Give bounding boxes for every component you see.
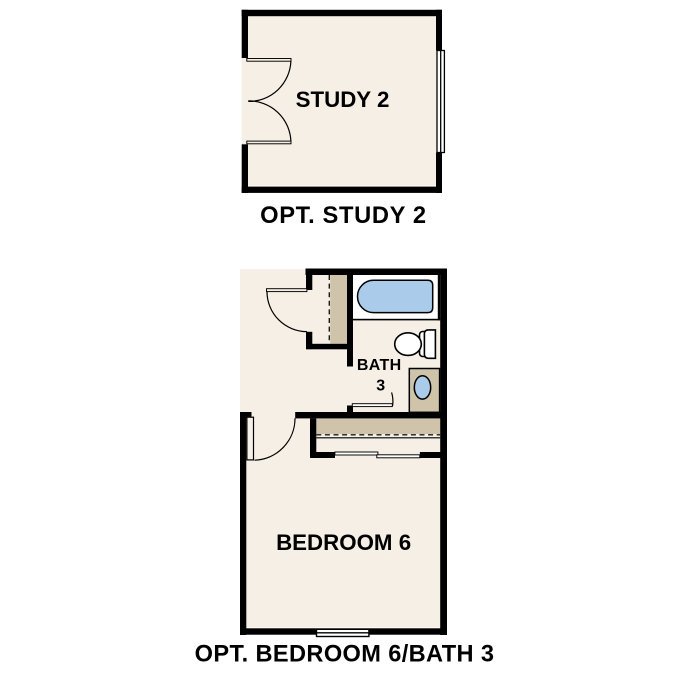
- svg-text:OPT. STUDY 2: OPT. STUDY 2: [260, 203, 427, 229]
- svg-text:STUDY 2: STUDY 2: [296, 87, 390, 112]
- svg-text:OPT. BEDROOM 6/BATH 3: OPT. BEDROOM 6/BATH 3: [195, 642, 495, 668]
- svg-text:BEDROOM 6: BEDROOM 6: [276, 530, 411, 555]
- svg-text:BATH: BATH: [357, 357, 402, 374]
- svg-text:3: 3: [376, 378, 385, 395]
